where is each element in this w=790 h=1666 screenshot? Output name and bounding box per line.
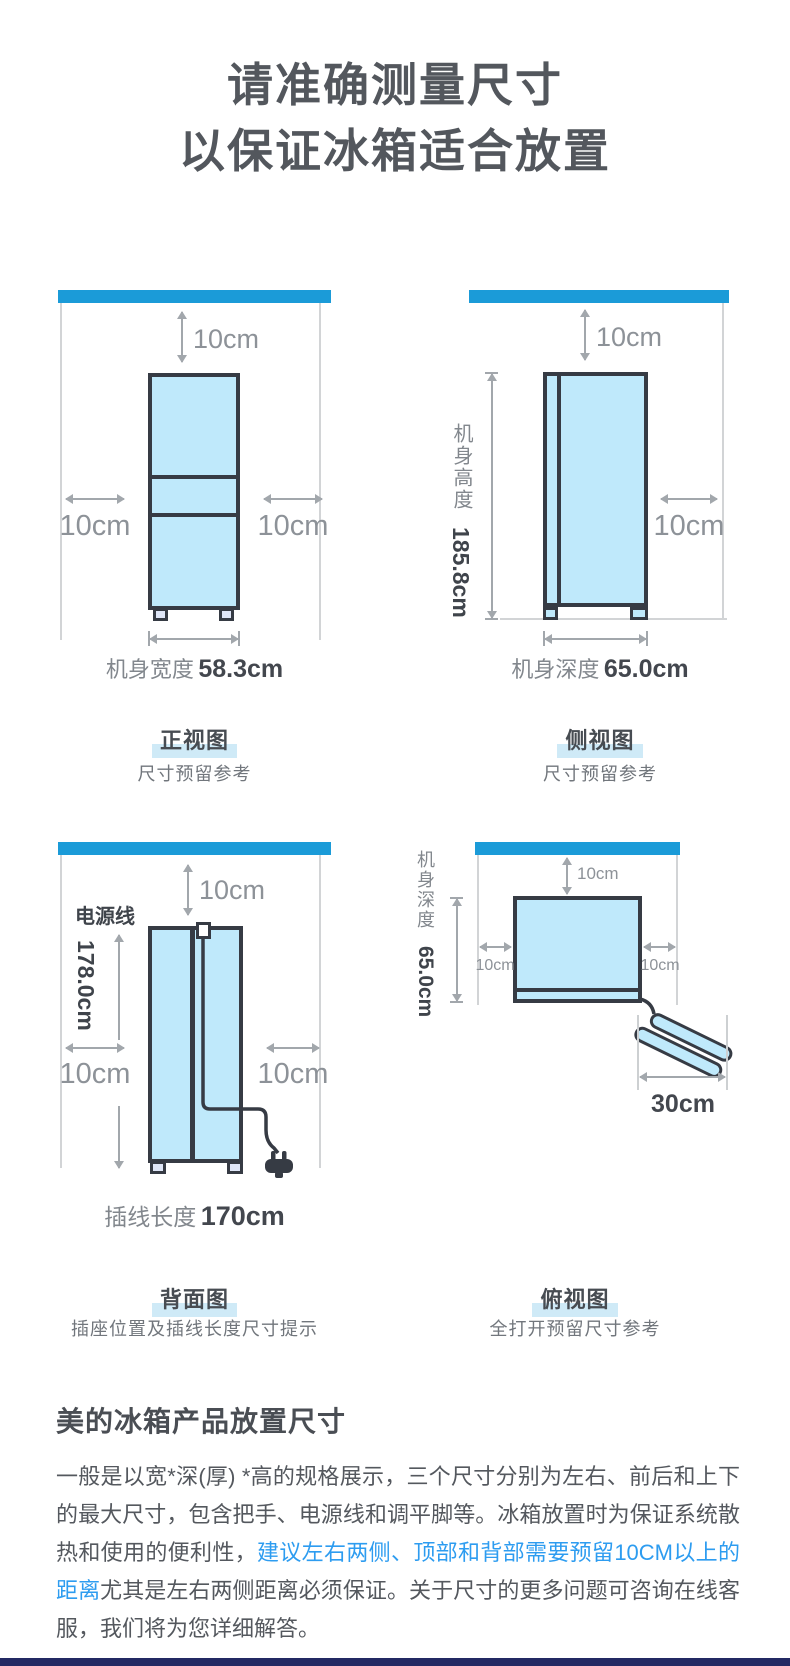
fridge-door-front-line	[517, 988, 638, 992]
depth-label: 机身深度	[415, 850, 435, 930]
placement-infographic: 请准确测量尺寸 以保证冰箱适合放置 10cm 10cm 10cm 机身宽度 58…	[0, 0, 790, 1666]
top-view-subcaption: 全打开预留尺寸参考	[410, 1315, 740, 1341]
door-open-value: 30cm	[651, 1090, 715, 1118]
fridge-foot-right	[227, 1161, 243, 1174]
width-measure	[148, 631, 240, 646]
clearance-arrow-top	[584, 310, 586, 360]
depth-value: 65.0cm	[604, 655, 689, 683]
cord-length-label: 插线长度	[104, 1204, 196, 1230]
clearance-arrow-left	[480, 946, 511, 948]
clearance-arrow-left	[66, 1047, 124, 1049]
wall-line-left	[477, 855, 479, 1005]
fridge-front-body	[148, 373, 240, 610]
top-view-diagram: 机身深度 65.0cm 10cm 10cm 10cm 30cm 俯视图 全打开预…	[420, 842, 750, 1354]
door-open-dimension-label: 30cm	[633, 1090, 733, 1119]
wall-line-left	[60, 855, 62, 1168]
side-view-diagram: 机身高度 185.8cm 10cm 10cm 机身深度 65.0cm 侧视图 尺…	[455, 290, 745, 810]
power-plug-icon	[265, 1151, 293, 1178]
clearance-arrow-right	[267, 1047, 319, 1049]
wall-line-left	[60, 303, 62, 640]
clearance-label-left: 10cm	[58, 1058, 132, 1091]
door-measure-guide-right	[726, 1015, 728, 1090]
fridge-foot-left	[150, 1161, 166, 1174]
fridge-door-divider	[152, 475, 236, 479]
clearance-label-top: 10cm	[577, 864, 619, 884]
bottom-section-bar	[0, 1658, 790, 1666]
ceiling-bar	[58, 842, 331, 855]
ceiling-bar	[469, 290, 729, 303]
back-view-diagram: 电源线 178.0cm 10cm 10cm 10cm 插线长度 170cm 背面…	[58, 842, 331, 1354]
front-view-diagram: 10cm 10cm 10cm 机身宽度 58.3cm 正视图 尺寸预留参考	[58, 290, 331, 810]
cord-drop-dimension-label: 178.0cm	[72, 940, 99, 1031]
height-value: 185.8cm	[448, 527, 474, 618]
clearance-label-top: 10cm	[596, 322, 662, 353]
clearance-arrow-top	[566, 858, 568, 894]
cord-drop-arrow-bottom	[118, 1106, 120, 1168]
height-measure	[485, 372, 499, 620]
wall-line-right	[722, 303, 724, 620]
clearance-label-right: 10cm	[652, 510, 726, 543]
height-dimension-label: 机身高度 185.8cm	[447, 423, 476, 618]
back-view-caption: 背面图	[58, 1282, 331, 1317]
open-door-icon	[632, 1007, 734, 1081]
clearance-label-right: 10cm	[635, 957, 685, 975]
back-view-subcaption: 插座位置及插线长度尺寸提示	[58, 1315, 331, 1341]
footer-heading: 美的冰箱产品放置尺寸	[56, 1400, 346, 1440]
ceiling-bar	[58, 290, 331, 303]
fridge-foot-left	[543, 607, 558, 620]
footer-text-after: 尤其是左右两侧距离必须保证。关于尺寸的更多问题可咨询在线客服，我们将为您详细解答…	[56, 1578, 740, 1641]
wall-line-right	[319, 855, 321, 1168]
fridge-foot-right	[630, 607, 648, 620]
fridge-foot-left	[153, 608, 168, 621]
top-view-caption: 俯视图	[410, 1282, 740, 1317]
clearance-label-top: 10cm	[199, 875, 265, 906]
clearance-arrow-right	[264, 498, 322, 500]
depth-dimension-label: 机身深度 65.0cm	[412, 850, 438, 1018]
side-view-subcaption: 尺寸预留参考	[455, 760, 745, 786]
fridge-foot-right	[219, 608, 234, 621]
clearance-arrow-left	[66, 498, 124, 500]
clearance-arrow-right	[644, 946, 675, 948]
fridge-door-divider	[152, 513, 236, 517]
clearance-label-left: 10cm	[58, 510, 132, 543]
clearance-label-right: 10cm	[256, 510, 330, 543]
clearance-arrow-top	[181, 312, 183, 362]
clearance-label-right: 10cm	[256, 1058, 330, 1091]
cord-drop-value: 178.0cm	[73, 940, 99, 1031]
depth-measure	[450, 897, 464, 1003]
door-open-arrow	[640, 1076, 725, 1078]
depth-value: 65.0cm	[414, 946, 437, 1017]
power-inlet	[196, 922, 211, 939]
clearance-label-top: 10cm	[193, 324, 259, 355]
wall-line-right	[319, 303, 321, 640]
height-label: 机身高度	[450, 423, 472, 511]
width-value: 58.3cm	[198, 655, 283, 683]
side-view-caption: 侧视图	[455, 723, 745, 758]
footer-paragraph: 一般是以宽*深(厚) *高的规格展示，三个尺寸分别为左右、前后和上下的最大尺寸，…	[56, 1458, 740, 1648]
depth-dimension-label: 机身深度 65.0cm	[455, 652, 745, 684]
width-label: 机身宽度	[106, 657, 194, 682]
wall-line-right	[676, 855, 678, 1005]
clearance-label-left: 10cm	[470, 957, 520, 975]
page-title-line2: 以保证冰箱适合放置	[0, 118, 790, 184]
cord-length-value: 170cm	[201, 1201, 285, 1231]
clearance-arrow-top	[187, 865, 189, 915]
cord-drop-arrow-top	[118, 935, 120, 1040]
depth-label: 机身深度	[511, 657, 599, 682]
cord-length-dimension-label: 插线长度 170cm	[58, 1198, 331, 1232]
page-title: 请准确测量尺寸 以保证冰箱适合放置	[0, 52, 790, 184]
clearance-arrow-right	[661, 498, 717, 500]
page-title-line1: 请准确测量尺寸	[0, 52, 790, 118]
fridge-back-divider	[190, 930, 195, 1159]
floor-line	[500, 618, 727, 620]
front-view-subcaption: 尺寸预留参考	[58, 760, 331, 786]
power-cord-label: 电源线	[75, 900, 135, 929]
front-view-caption: 正视图	[58, 723, 331, 758]
fridge-door-edge	[557, 376, 561, 603]
wall-bar	[475, 842, 680, 855]
fridge-side-body	[543, 372, 648, 607]
width-dimension-label: 机身宽度 58.3cm	[58, 652, 331, 684]
depth-measure	[543, 631, 648, 646]
fridge-top-body	[513, 896, 642, 1003]
fridge-back-body	[148, 926, 243, 1163]
